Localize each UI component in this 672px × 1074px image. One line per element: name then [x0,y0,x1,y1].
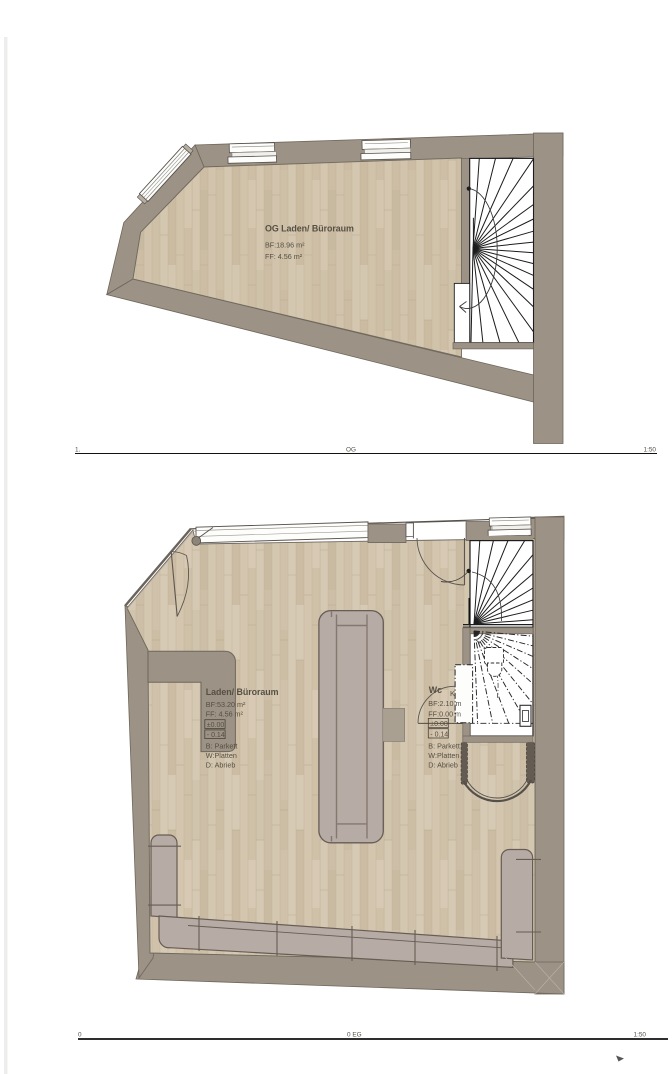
svg-text:OG Laden/ Büroraum: OG Laden/ Büroraum [265,224,354,234]
svg-text:0 EG: 0 EG [347,1032,362,1039]
svg-text:B: Parkett: B: Parkett [428,741,460,750]
svg-text:K: K [450,689,455,698]
svg-text:W:Platten: W:Platten [428,751,459,760]
svg-text:D: Abrieb: D: Abrieb [428,761,458,770]
svg-text:FF: 4.56 m²: FF: 4.56 m² [265,252,303,261]
svg-text:Wc: Wc [429,685,442,695]
svg-text:BF:18.96 m²: BF:18.96 m² [265,241,305,250]
svg-text:1.: 1. [75,447,81,454]
svg-text:BF:2.10 m: BF:2.10 m [428,699,461,708]
svg-text:Laden/ Büroraum: Laden/ Büroraum [206,687,279,697]
svg-text:FF:0.00 m: FF:0.00 m [428,710,461,719]
svg-text:1:50: 1:50 [644,447,657,454]
svg-text:D: Abrieb: D: Abrieb [206,761,236,770]
svg-text:BF:53.20 m²: BF:53.20 m² [206,700,246,709]
svg-text:B: Parkett: B: Parkett [206,741,238,750]
svg-text:1:50: 1:50 [634,1032,647,1039]
svg-text:OG: OG [346,447,356,454]
svg-text:- 0.14: - 0.14 [430,731,448,738]
svg-text:±0.00: ±0.00 [430,721,448,728]
svg-text:- 0.14: - 0.14 [207,732,225,739]
svg-text:±0.00: ±0.00 [207,722,225,729]
svg-text:FF: 4.56 m²: FF: 4.56 m² [206,710,244,719]
svg-text:W:Platten: W:Platten [206,751,237,760]
svg-text:0: 0 [78,1032,82,1039]
